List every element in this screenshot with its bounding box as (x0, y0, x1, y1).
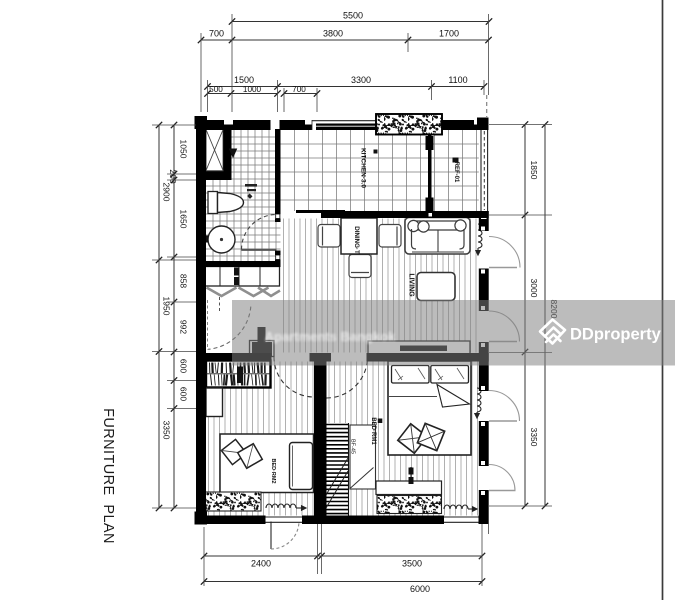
svg-text:6000: 6000 (410, 584, 430, 594)
svg-text:600: 600 (179, 387, 189, 401)
svg-text:LIVING: LIVING (408, 273, 415, 297)
svg-text:1950: 1950 (162, 297, 172, 316)
svg-text:3350: 3350 (162, 421, 172, 440)
svg-text:2900: 2900 (162, 183, 172, 202)
svg-text:3300: 3300 (351, 75, 371, 85)
svg-text:3500: 3500 (402, 559, 422, 569)
svg-text:Apartments Bangkok: Apartments Bangkok (265, 329, 397, 344)
svg-text:1100: 1100 (448, 75, 467, 85)
svg-text:DINING·T: DINING·T (353, 226, 360, 254)
svg-text:BF-45: BF-45 (350, 439, 356, 454)
svg-text:REF-01: REF-01 (453, 162, 459, 183)
svg-text:700: 700 (209, 29, 224, 39)
svg-text:1850: 1850 (529, 161, 539, 180)
svg-text:200: 200 (168, 169, 178, 183)
svg-text:500: 500 (209, 85, 223, 94)
svg-text:1700: 1700 (439, 29, 459, 39)
svg-text:858: 858 (179, 274, 189, 288)
svg-text:600: 600 (179, 359, 189, 373)
svg-text:5500: 5500 (343, 11, 363, 21)
svg-text:1650: 1650 (179, 210, 189, 229)
svg-text:DDproperty: DDproperty (570, 326, 662, 344)
svg-text:2400: 2400 (251, 559, 271, 569)
svg-text:992: 992 (179, 320, 189, 334)
svg-text:1500: 1500 (234, 75, 254, 85)
svg-text:BED·RM1: BED·RM1 (370, 417, 376, 445)
svg-text:1000: 1000 (243, 85, 262, 94)
svg-text:BED·RM2: BED·RM2 (270, 458, 276, 483)
svg-text:FURNITURE PLAN: FURNITURE PLAN (100, 408, 116, 544)
svg-text:3800: 3800 (323, 29, 343, 39)
svg-text:3000: 3000 (529, 279, 539, 298)
svg-text:700: 700 (292, 85, 306, 94)
svg-text:1050: 1050 (179, 140, 189, 159)
svg-text:3350: 3350 (529, 428, 539, 447)
svg-text:KITCHEN·3.0: KITCHEN·3.0 (360, 148, 367, 188)
